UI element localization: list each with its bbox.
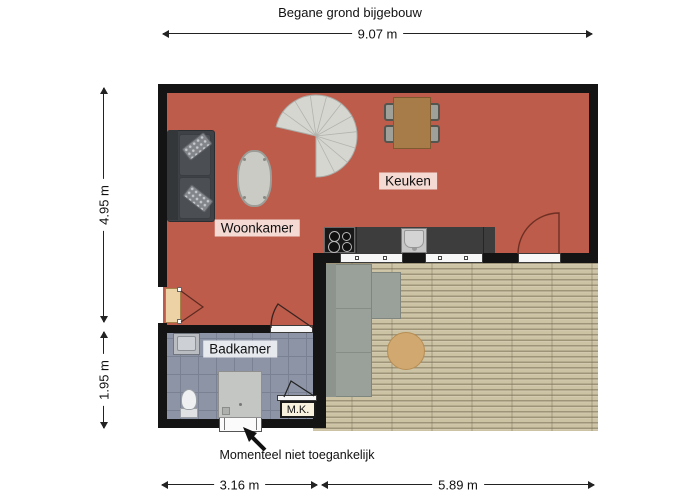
arrowhead-icon <box>100 87 108 94</box>
spiral-staircase <box>272 92 360 180</box>
sofa-backrest <box>167 130 178 220</box>
dim-bottom-right: 5.89 m <box>322 484 594 485</box>
dim-left-upper-value: 4.95 m <box>96 179 111 231</box>
meter-closet-label: M.K. <box>287 404 310 416</box>
kitchen-sink-basin <box>404 230 424 248</box>
counter-seam <box>356 227 357 253</box>
arrowhead-icon <box>588 481 595 489</box>
floor-plan-canvas: Begane grond bijgebouw <box>0 0 700 500</box>
room-label-living: Woonkamer <box>215 220 300 237</box>
outdoor-sofa-seam <box>336 308 372 309</box>
bottom-entry-door <box>219 416 262 432</box>
dining-table <box>393 97 431 149</box>
window-mullion-icon <box>464 256 468 260</box>
arrowhead-icon <box>586 30 593 38</box>
dim-left-upper: 4.95 m <box>103 88 104 322</box>
wall-top <box>158 84 598 93</box>
toilet <box>181 389 197 410</box>
meter-closet: M.K. <box>280 401 316 418</box>
bathroom-sink-basin <box>177 336 196 351</box>
annotation-note: Momenteel niet toegankelijk <box>220 448 375 462</box>
shower-dot <box>239 403 242 406</box>
cooktop <box>324 227 355 253</box>
window <box>340 253 403 263</box>
wall-left-upper <box>158 84 167 287</box>
door-hinge-icon <box>177 319 182 324</box>
arrowhead-icon <box>311 481 318 489</box>
burner-icon <box>328 241 340 253</box>
arrowhead-icon <box>321 481 328 489</box>
plan-title: Begane grond bijgebouw <box>150 5 550 20</box>
dim-bottom-left: 3.16 m <box>162 484 317 485</box>
door-panel-line <box>256 418 257 430</box>
window-mullion-icon <box>355 256 359 260</box>
dim-top-value: 9.07 m <box>352 26 404 41</box>
kitchen-door-threshold <box>518 253 561 263</box>
arrowhead-icon <box>162 30 169 38</box>
dim-left-lower-value: 1.95 m <box>96 354 111 406</box>
table-dot <box>243 196 246 199</box>
room-label-kitchen: Keuken <box>379 173 437 190</box>
dim-bottom-left-value: 3.16 m <box>214 477 266 492</box>
door-hinge-icon <box>177 287 182 292</box>
arrowhead-icon <box>100 316 108 323</box>
entry-door-leaf <box>165 288 181 323</box>
door-panel-line <box>224 418 225 430</box>
table-dot <box>263 158 266 161</box>
wall-right <box>589 84 598 262</box>
table-dot <box>263 196 266 199</box>
dim-bottom-right-value: 5.89 m <box>432 477 484 492</box>
window-mullion-icon <box>438 256 442 260</box>
arrowhead-icon <box>161 481 168 489</box>
living-floor-lower <box>163 258 326 333</box>
arrowhead-icon <box>100 422 108 429</box>
burner-icon <box>342 242 352 252</box>
coffee-table <box>237 150 272 207</box>
arrowhead-icon <box>100 331 108 338</box>
dim-left-lower: 1.95 m <box>103 332 104 428</box>
window-mullion-icon <box>383 256 387 260</box>
outdoor-pouf <box>387 332 425 370</box>
burner-icon <box>342 232 351 241</box>
table-dot <box>243 158 246 161</box>
outdoor-sofa-backrest <box>326 264 336 397</box>
window <box>425 253 483 263</box>
outdoor-sofa-seam <box>336 352 372 353</box>
bathroom-door-threshold <box>270 325 313 333</box>
counter-seam <box>483 227 484 253</box>
outdoor-sofa-chaise <box>371 272 401 319</box>
room-label-bathroom: Badkamer <box>203 341 277 358</box>
wall-left-lower <box>158 323 167 428</box>
shower-drain <box>222 407 230 415</box>
dim-top: 9.07 m <box>163 33 592 34</box>
